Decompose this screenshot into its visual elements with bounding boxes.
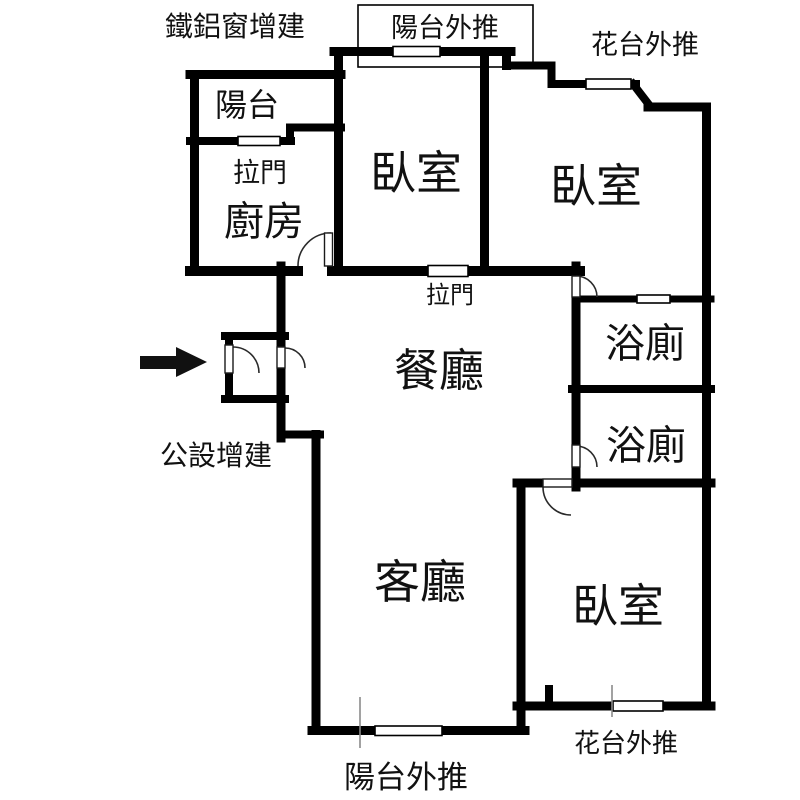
- window-balcony: [238, 137, 280, 146]
- bath2-door-leaf: [572, 445, 580, 467]
- label-common-facility-addition: 公設增建: [160, 440, 272, 471]
- label-bedroom3: 臥室: [572, 580, 664, 632]
- label-bedroom1: 臥室: [370, 147, 462, 199]
- label-flower-pushout-top: 花台外推: [591, 30, 699, 60]
- label-balcony-pushout-bottom: 陽台外推: [344, 760, 468, 795]
- bedroom3-door-leaf: [543, 479, 572, 487]
- label-living: 客廳: [374, 556, 466, 608]
- bedroom2-door-leaf: [572, 276, 580, 297]
- floor-plan-svg: 鐵鋁窗增建 陽台外推 花台外推 陽台 拉門 廚房 臥室 臥室 拉門 餐廳 浴廁 …: [0, 0, 800, 800]
- sliding-door-bedroom1: [428, 266, 468, 277]
- label-bath2: 浴廁: [606, 424, 686, 468]
- label-kitchen: 廚房: [224, 200, 304, 244]
- floor-plan-page: 鐵鋁窗增建 陽台外推 花台外推 陽台 拉門 廚房 臥室 臥室 拉門 餐廳 浴廁 …: [0, 0, 800, 800]
- label-flower-pushout-bottom: 花台外推: [574, 728, 678, 758]
- window-living-bottom: [375, 726, 442, 736]
- label-iron-window-addition: 鐵鋁窗增建: [165, 11, 305, 42]
- label-balcony: 陽台: [215, 87, 279, 123]
- label-dining: 餐廳: [394, 345, 484, 396]
- window-bath1-top: [637, 295, 670, 303]
- label-bedroom2: 臥室: [550, 160, 642, 212]
- label-bath1: 浴廁: [605, 322, 685, 366]
- label-sliding-door-dining: 拉門: [426, 282, 474, 309]
- window-step: [586, 79, 631, 89]
- label-sliding-door-kitchen: 拉門: [233, 158, 287, 188]
- label-balcony-pushout-top: 陽台外推: [391, 13, 499, 43]
- window-bedroom1-top: [393, 47, 440, 57]
- plan-background: [0, 0, 800, 800]
- kitchen-door-leaf: [325, 233, 333, 266]
- entrance-door-leaf: [225, 345, 233, 373]
- window-bedroom3-bottom: [613, 701, 663, 711]
- entry-inner-door-leaf: [277, 347, 285, 368]
